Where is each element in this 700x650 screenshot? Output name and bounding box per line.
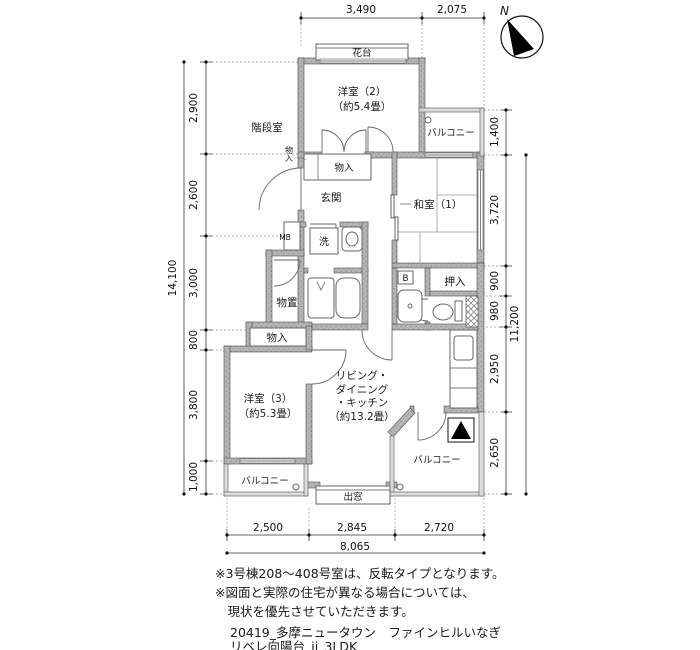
label-japanese1: 和室（1） xyxy=(414,198,463,211)
drain-right-balcony xyxy=(397,484,403,490)
north-arrow: N xyxy=(500,4,543,58)
label-ldk-1: リビング・ xyxy=(336,369,389,382)
dim-bottom-3: 2,720 xyxy=(424,522,454,534)
label-western3: 洋室（3） xyxy=(244,392,293,405)
footer-line-2: リベレ向陽台_jj_3LDK xyxy=(230,639,358,650)
dim-left-1: 2,900 xyxy=(188,93,200,123)
note-line-1: ※3号棟208〜408号室は、反転タイプとなります。 xyxy=(215,566,505,581)
notes: ※3号棟208〜408号室は、反転タイプとなります。 ※図面と実際の住宅が異なる… xyxy=(215,566,505,650)
toilet-tank xyxy=(455,301,462,321)
label-bath: B xyxy=(402,274,408,284)
drain-left-balcony xyxy=(293,484,299,490)
label-balcony-top: バルコニー xyxy=(427,128,474,139)
label-storage-shed: 物置 xyxy=(277,296,298,309)
dim-left-6: 1,000 xyxy=(188,462,200,492)
bathtub xyxy=(336,278,360,318)
label-closet3: 物入 xyxy=(267,331,288,344)
label-entrance: 玄関 xyxy=(321,191,342,204)
note-line-3: 現状を優先させていただきます。 xyxy=(215,604,414,619)
dimension-right: 1,400 3,720 900 980 2,950 2,650 11,200 xyxy=(478,108,528,495)
drain-top-balcony xyxy=(425,117,431,123)
dim-right-3: 900 xyxy=(489,271,501,291)
dim-left-5: 3,800 xyxy=(188,390,200,420)
dim-top-1: 3,490 xyxy=(346,4,376,16)
label-western2: 洋室（2） xyxy=(338,85,387,98)
label-oshiire: 押入 xyxy=(445,275,466,288)
dim-right-6: 2,650 xyxy=(489,438,501,468)
dim-bottom-2: 2,845 xyxy=(337,522,367,534)
dim-right-total: 11,200 xyxy=(509,306,521,343)
escape-hatch xyxy=(448,418,474,442)
dim-left-total: 14,100 xyxy=(167,260,179,297)
dim-right-1: 1,400 xyxy=(489,117,501,147)
label-balcony-left: バルコニー xyxy=(241,476,288,487)
label-western3-size: （約5.3畳） xyxy=(239,407,298,420)
dim-top-2: 2,075 xyxy=(437,4,467,16)
label-laundry: 洗 xyxy=(319,236,329,248)
footer-line-1: 20419_多摩ニュータウン ファインヒルいなぎ xyxy=(230,625,501,640)
toilet-bowl xyxy=(433,304,453,320)
dim-right-4: 980 xyxy=(489,301,501,321)
kitchen-sink xyxy=(454,336,473,360)
dim-right-5: 2,950 xyxy=(489,354,501,384)
label-ldk-2: ダイニング xyxy=(336,383,389,396)
dim-bottom-1: 2,500 xyxy=(253,522,283,534)
dim-left-3: 3,000 xyxy=(188,268,200,298)
floor-plan-drawing: 3,490 2,075 2,900 2,600 3,000 800 3,800 … xyxy=(0,0,700,650)
dim-bottom-total: 8,065 xyxy=(340,541,370,553)
label-ldk-3: ・キッチン xyxy=(336,397,389,409)
north-label: N xyxy=(500,4,509,18)
dim-right-2: 3,720 xyxy=(489,195,501,225)
label-stairwell: 階段室 xyxy=(251,121,283,134)
label-balcony-right: バルコニー xyxy=(413,455,460,466)
dim-left-4: 800 xyxy=(188,330,200,350)
dim-left-2: 2,600 xyxy=(188,180,200,210)
shower-pan xyxy=(308,278,334,318)
label-closet-small: 物入 xyxy=(285,145,294,162)
floor-plan-page: 3,490 2,075 2,900 2,600 3,000 800 3,800 … xyxy=(0,0,700,650)
label-western2-size: （約5.4畳） xyxy=(333,100,392,113)
label-meter-box: MB xyxy=(279,233,291,242)
label-closet-hall: 物入 xyxy=(334,162,354,174)
label-flower-stand: 花台 xyxy=(352,47,371,59)
note-line-2: ※図面と実際の住宅が異なる場合については、 xyxy=(215,585,475,600)
room-labels: 階段室 花台 洋室（2） （約5.4畳） バルコニー 物入 物入 玄関 和室（1… xyxy=(239,47,475,503)
label-bay-window: 出窓 xyxy=(343,491,362,503)
balconies xyxy=(224,44,484,504)
dimension-bottom: 2,500 2,845 2,720 8,065 xyxy=(225,498,485,555)
label-ldk-4: （約13.2畳） xyxy=(329,410,394,423)
